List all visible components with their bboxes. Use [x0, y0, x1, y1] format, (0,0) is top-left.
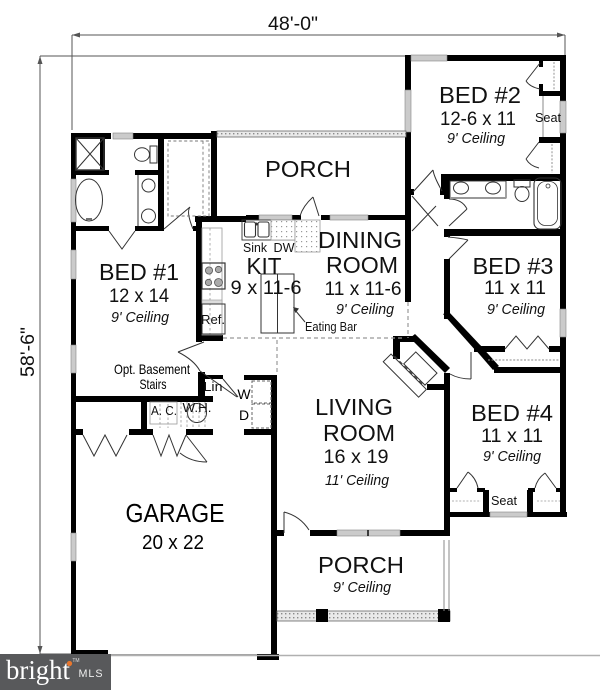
- svg-text:GARAGE: GARAGE: [126, 498, 225, 528]
- svg-text:9' Ceiling: 9' Ceiling: [333, 579, 392, 596]
- svg-text:9' Ceiling: 9' Ceiling: [111, 309, 170, 326]
- svg-text:TM: TM: [72, 658, 79, 664]
- svg-text:Sink: Sink: [243, 240, 267, 255]
- svg-text:ROOM: ROOM: [323, 420, 395, 446]
- svg-text:Seat: Seat: [535, 110, 561, 125]
- svg-text:Seat: Seat: [491, 493, 517, 508]
- svg-text:PORCH: PORCH: [265, 156, 351, 182]
- svg-text:Opt. Basement: Opt. Basement: [114, 361, 190, 377]
- svg-text:11 x 11-6: 11 x 11-6: [325, 279, 402, 300]
- svg-text:11' Ceiling: 11' Ceiling: [325, 472, 390, 489]
- svg-text:Ref.: Ref.: [201, 312, 225, 327]
- svg-text:9' Ceiling: 9' Ceiling: [336, 301, 395, 318]
- svg-text:W.H.: W.H.: [183, 400, 212, 415]
- svg-text:DINING: DINING: [318, 227, 402, 253]
- svg-text:16 x 19: 16 x 19: [324, 447, 389, 468]
- svg-text:Stairs: Stairs: [140, 376, 167, 392]
- svg-text:11 x 11: 11 x 11: [481, 426, 543, 447]
- svg-text:PORCH: PORCH: [318, 552, 404, 578]
- svg-text:12 x 14: 12 x 14: [109, 286, 169, 307]
- svg-text:9' Ceiling: 9' Ceiling: [447, 130, 506, 147]
- svg-text:BED #2: BED #2: [439, 82, 521, 108]
- svg-text:bright: bright: [6, 655, 70, 685]
- svg-text:KIT: KIT: [247, 253, 282, 279]
- svg-text:D: D: [239, 407, 249, 423]
- svg-text:BED #4: BED #4: [471, 400, 553, 426]
- svg-text:DW: DW: [274, 240, 296, 255]
- svg-text:BED #1: BED #1: [99, 259, 179, 285]
- svg-text:Eating Bar: Eating Bar: [305, 319, 358, 334]
- svg-text:9' Ceiling: 9' Ceiling: [483, 448, 542, 465]
- svg-text:9' Ceiling: 9' Ceiling: [487, 301, 546, 318]
- svg-text:9 x 11-6: 9 x 11-6: [231, 278, 302, 299]
- svg-text:LIVING: LIVING: [315, 394, 393, 420]
- svg-text:58'-6": 58'-6": [18, 327, 39, 377]
- svg-text:W: W: [237, 386, 251, 402]
- svg-text:BED #3: BED #3: [473, 253, 554, 279]
- svg-text:48'-0": 48'-0": [268, 14, 318, 35]
- svg-text:A. C.: A. C.: [151, 403, 177, 418]
- svg-text:11 x 11: 11 x 11: [484, 278, 546, 299]
- svg-text:Lin: Lin: [204, 379, 223, 394]
- svg-text:20 x 22: 20 x 22: [142, 532, 204, 554]
- svg-text:12-6 x 11: 12-6 x 11: [440, 109, 516, 130]
- svg-text:MLS: MLS: [79, 668, 104, 680]
- svg-text:ROOM: ROOM: [326, 252, 398, 278]
